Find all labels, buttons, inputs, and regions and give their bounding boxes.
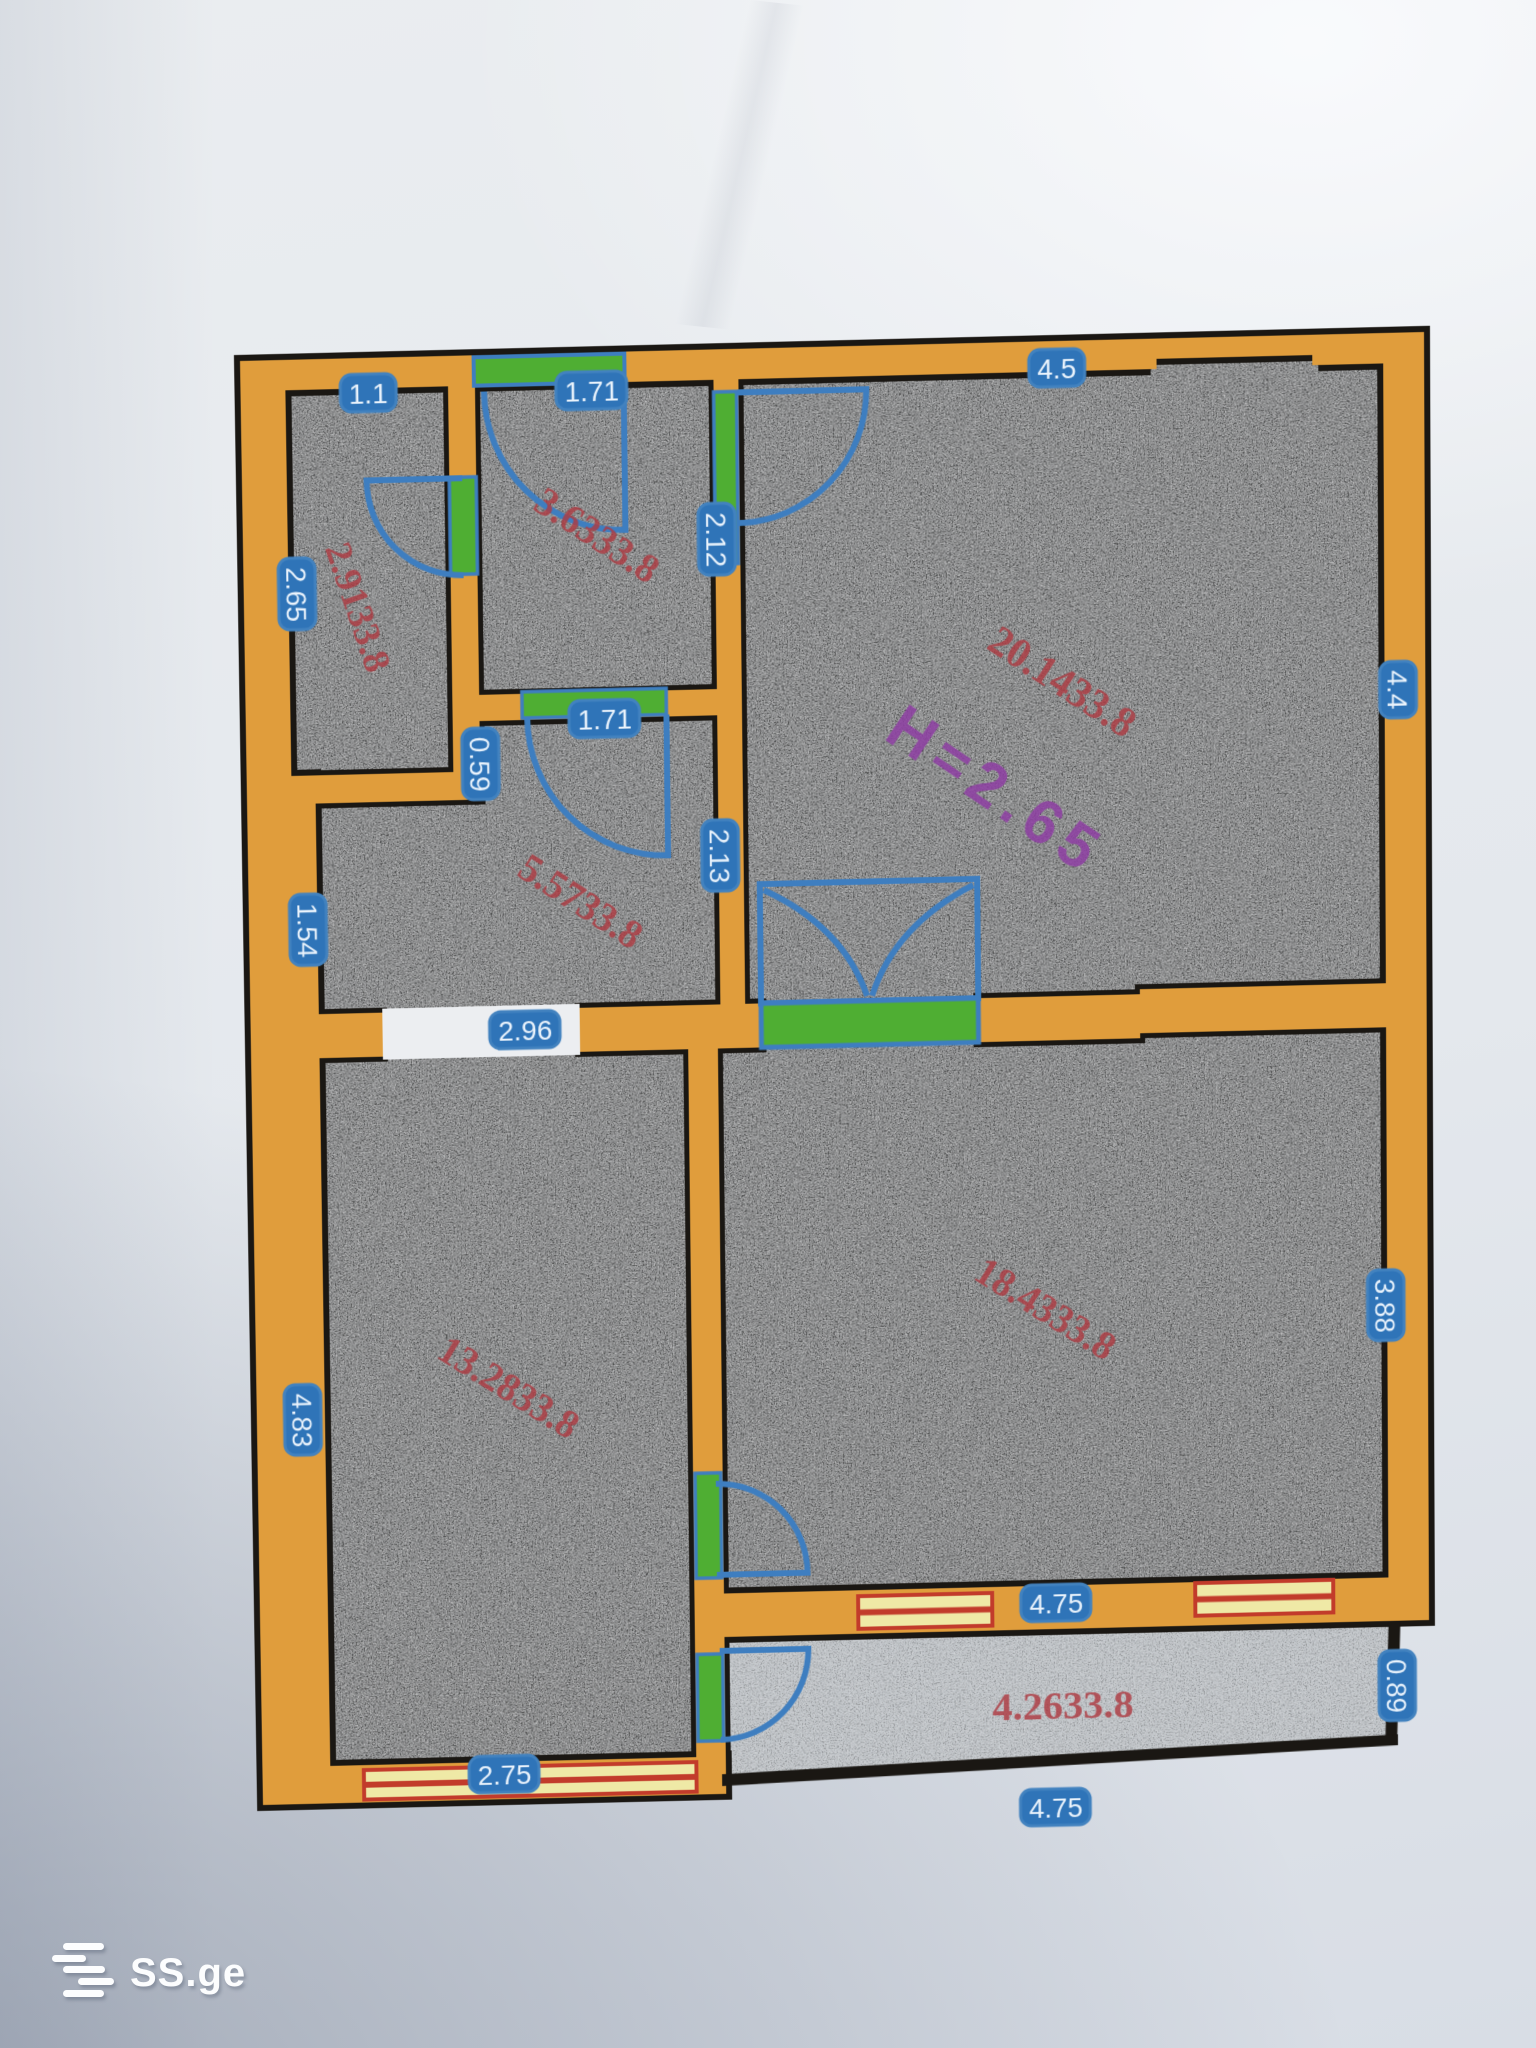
- svg-text:2.13: 2.13: [704, 828, 736, 883]
- svg-text:1.71: 1.71: [578, 702, 633, 735]
- svg-text:4.75: 4.75: [1029, 1791, 1083, 1824]
- svg-text:2.65: 2.65: [280, 567, 312, 623]
- svg-text:1.71: 1.71: [564, 374, 619, 408]
- svg-text:4.4: 4.4: [1382, 670, 1414, 710]
- svg-text:1.54: 1.54: [291, 903, 323, 958]
- svg-text:2.12: 2.12: [700, 512, 732, 568]
- svg-text:2.75: 2.75: [478, 1758, 532, 1791]
- svg-text:3.88: 3.88: [1369, 1278, 1401, 1333]
- svg-text:4.2633.8: 4.2633.8: [992, 1681, 1134, 1729]
- svg-text:0.89: 0.89: [1381, 1659, 1412, 1714]
- svg-text:4.83: 4.83: [286, 1393, 318, 1448]
- svg-text:0.59: 0.59: [464, 737, 496, 793]
- svg-text:4.75: 4.75: [1029, 1587, 1083, 1620]
- svg-text:1.1: 1.1: [349, 377, 388, 410]
- svg-text:2.96: 2.96: [498, 1014, 552, 1047]
- svg-text:4.5: 4.5: [1037, 352, 1076, 385]
